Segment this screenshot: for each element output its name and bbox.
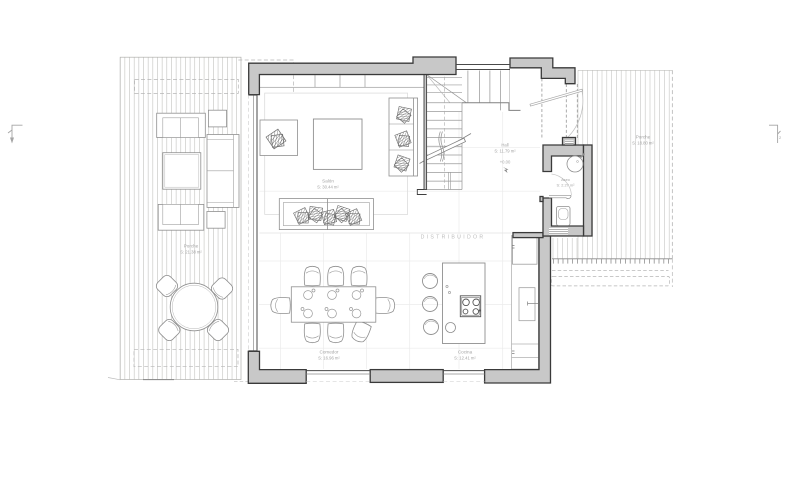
- svg-text:DISTRIBUIDOR: DISTRIBUIDOR: [421, 235, 486, 241]
- svg-text:S: 16.96 m²: S: 16.96 m²: [318, 356, 340, 361]
- svg-text:S: 30.44 m²: S: 30.44 m²: [317, 185, 339, 190]
- svg-text:Porche: Porche: [636, 135, 651, 140]
- svg-text:Salón: Salón: [322, 179, 334, 184]
- svg-text:S: 18.80 m²: S: 18.80 m²: [632, 141, 654, 146]
- svg-text:Comedor: Comedor: [320, 350, 339, 355]
- svg-text:Aseo: Aseo: [561, 177, 570, 182]
- svg-text:Cocina: Cocina: [458, 350, 473, 355]
- svg-text:+0.00: +0.00: [500, 160, 511, 165]
- svg-text:Porche: Porche: [184, 244, 199, 249]
- svg-text:Hall: Hall: [501, 143, 508, 148]
- svg-text:S: 11.79 m²: S: 11.79 m²: [494, 149, 516, 154]
- svg-text:S: 2.27 m²: S: 2.27 m²: [557, 183, 576, 188]
- svg-text:S: 21.38 m²: S: 21.38 m²: [180, 250, 202, 255]
- svg-text:S: 12.41 m²: S: 12.41 m²: [454, 356, 476, 361]
